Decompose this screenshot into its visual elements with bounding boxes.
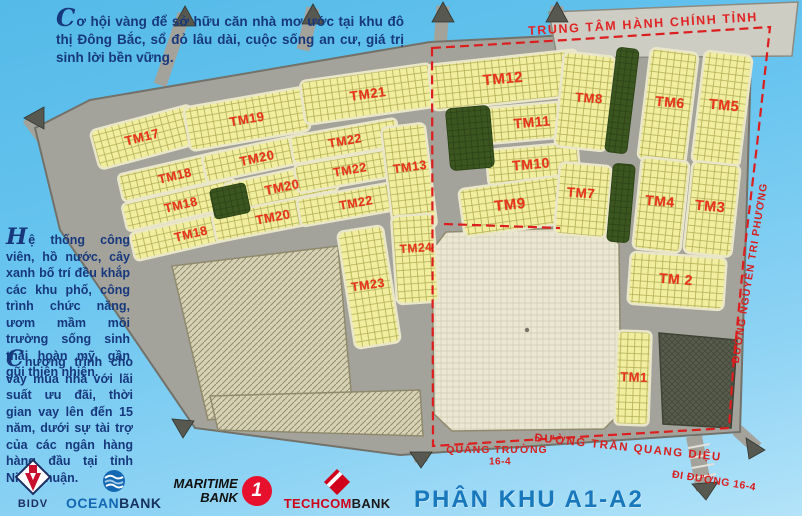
techcombank-word-bank: BANK	[352, 496, 391, 511]
techcombank-logo: TECHCOMBANK	[284, 469, 391, 510]
maritime-wordmark: MARITIME BANK	[174, 477, 238, 504]
maritime-one-icon: 1	[242, 476, 272, 506]
maritime-bank-logo: MARITIME BANK 1	[174, 476, 272, 510]
techcombank-word-techcom: TECHCOM	[284, 496, 352, 511]
bidv-diamond-icon	[12, 459, 54, 497]
techcombank-diamond-icon	[324, 469, 350, 495]
maritime-word-2: BANK	[174, 491, 238, 505]
subdivision-title: PHÂN KHU A1-A2	[414, 486, 644, 514]
oceanbank-logo: OCEANBANK	[66, 468, 162, 510]
techcombank-wordmark: TECHCOMBANK	[284, 497, 391, 510]
oceanbank-wordmark: OCEANBANK	[66, 496, 162, 510]
bidv-logo: BIDV	[12, 459, 54, 510]
oceanbank-wave-icon	[100, 468, 128, 494]
maritime-word-1: MARITIME	[174, 477, 238, 491]
square-center-mark	[525, 328, 529, 332]
oceanbank-word-bank: BANK	[119, 495, 161, 511]
bidv-wordmark: BIDV	[18, 498, 48, 510]
oceanbank-word-ocean: OCEAN	[66, 495, 119, 511]
bank-logos: BIDV OCEANBANK MARITIME BANK 1 TECHCO	[12, 452, 360, 510]
flyer-stage: Cơ hội vàng để sở hữu căn nhà mơ ước tại…	[0, 0, 802, 516]
promo-paragraph-1: Cơ hội vàng để sở hữu căn nhà mơ ước tại…	[56, 8, 404, 66]
